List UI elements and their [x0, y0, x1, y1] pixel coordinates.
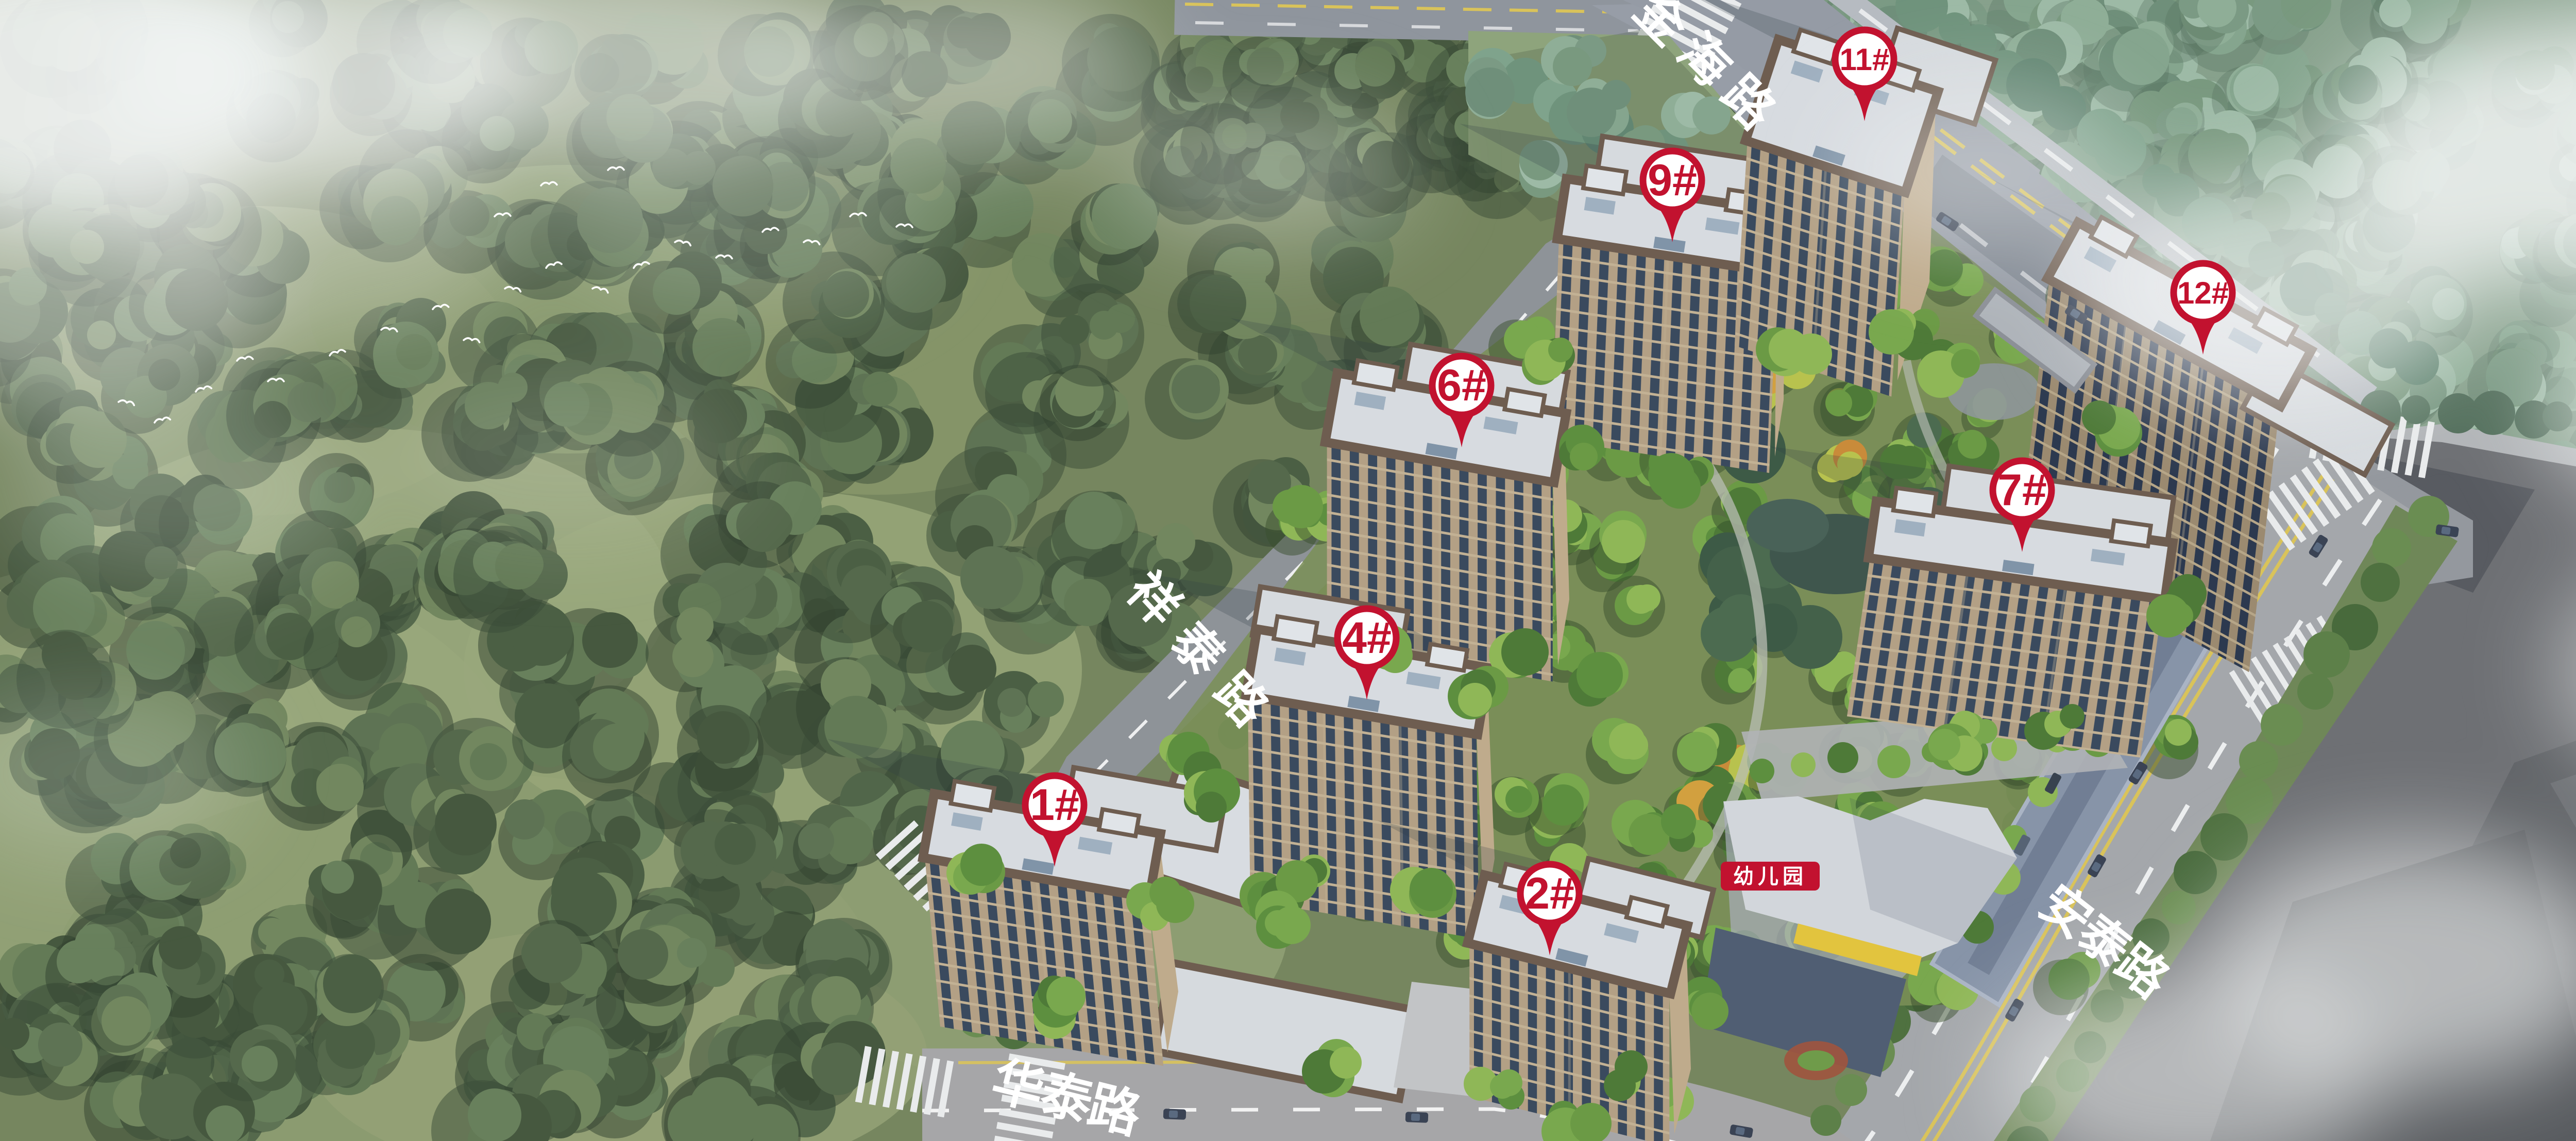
svg-text:2#: 2#: [1525, 869, 1574, 918]
svg-text:4#: 4#: [1342, 613, 1392, 663]
svg-text:6#: 6#: [1437, 361, 1486, 410]
svg-text:7#: 7#: [1997, 465, 2047, 515]
svg-text:9#: 9#: [1648, 156, 1697, 205]
svg-text:1#: 1#: [1030, 780, 1079, 830]
svg-text:12#: 12#: [2177, 276, 2229, 310]
svg-text:幼儿园: 幼儿园: [1733, 865, 1807, 888]
svg-text:11#: 11#: [1840, 42, 1890, 77]
